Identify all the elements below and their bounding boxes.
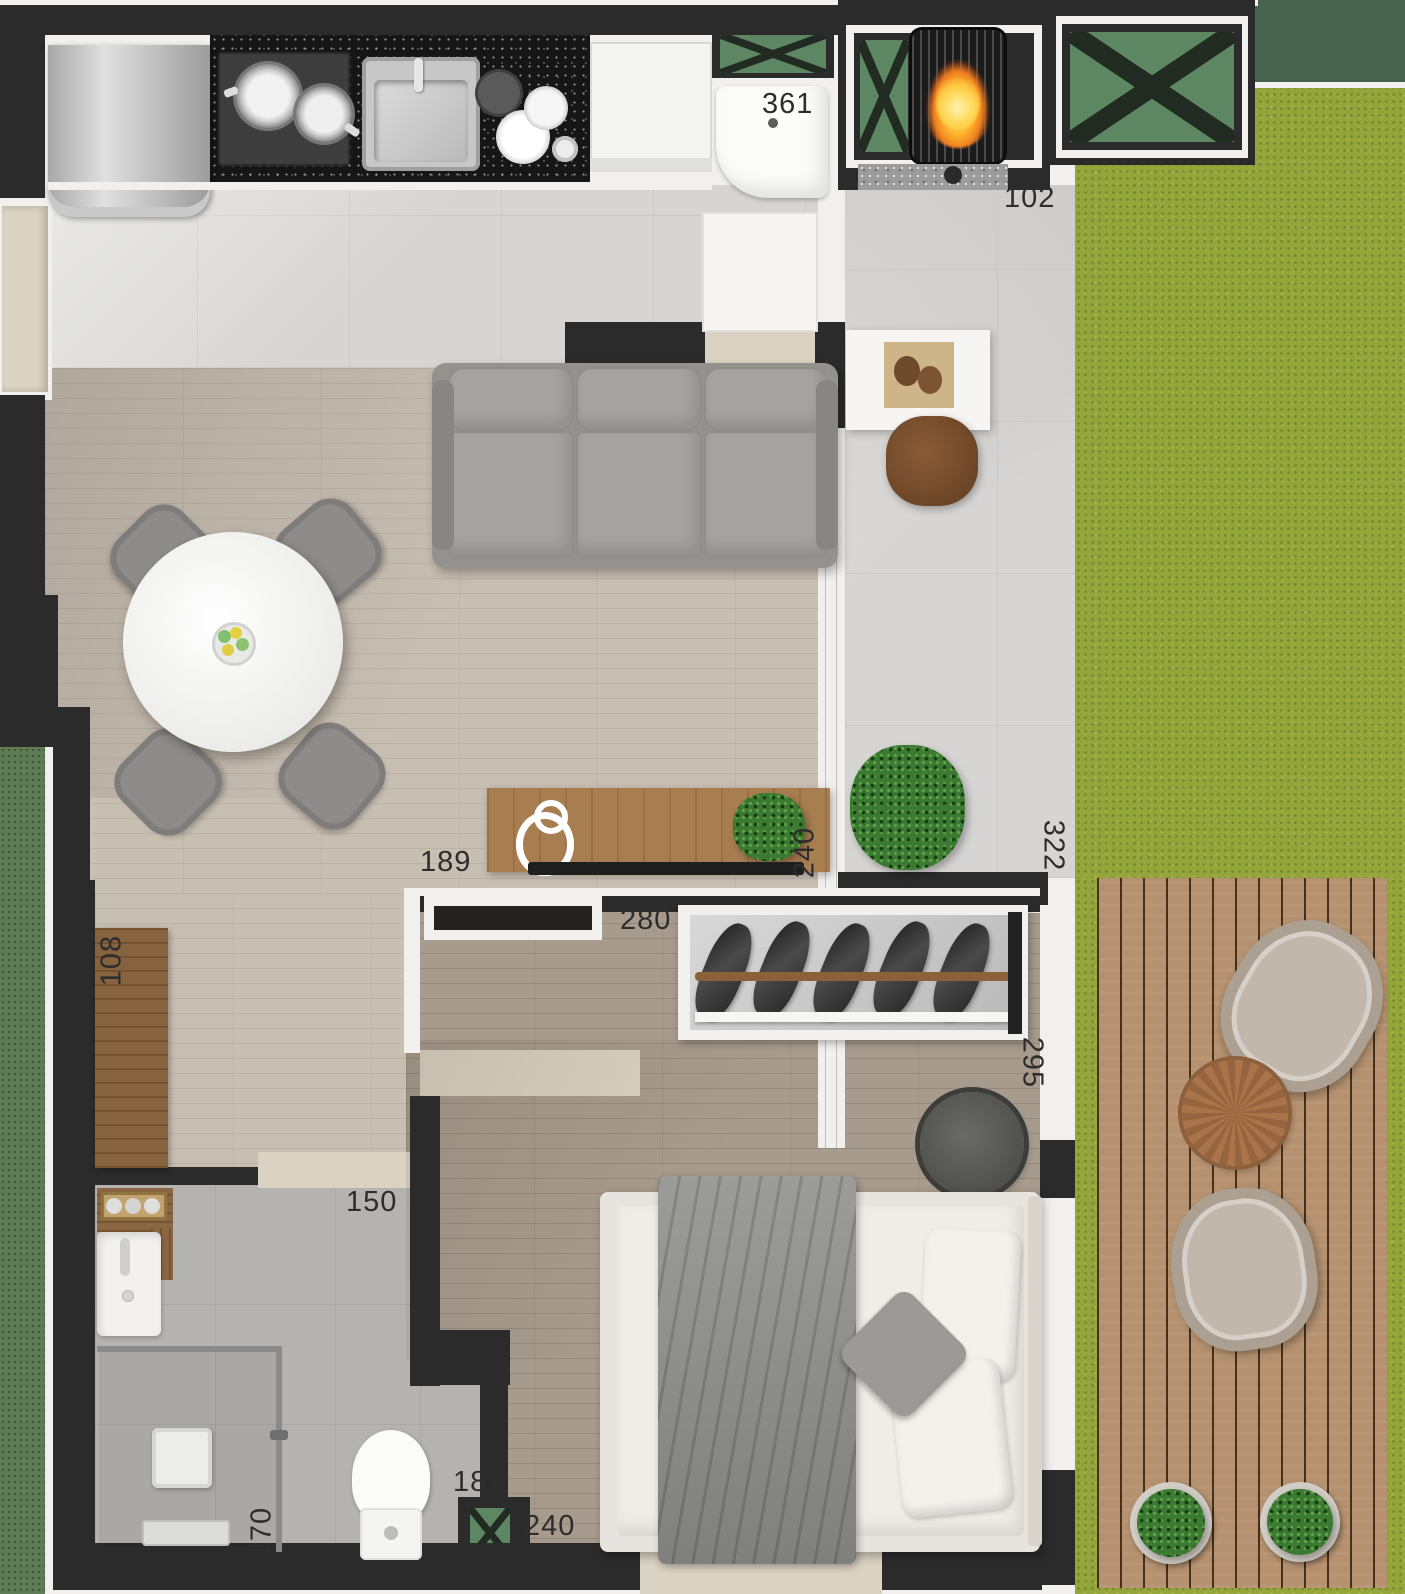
sofa-armrest [432, 380, 454, 550]
dimension-label-bathroom-wall: 187 [453, 1468, 504, 1497]
dimension-label-shower: 170 [248, 1503, 277, 1563]
hedge-top-right [1255, 0, 1405, 88]
dimension-label-bathroom-entry: 150 [346, 1188, 397, 1217]
wall-left-lower [53, 880, 95, 1543]
sofa-back-cushion [448, 367, 574, 431]
dimension-label-terrace-entry: 102 [1004, 184, 1055, 213]
duct-x-icon [720, 35, 826, 73]
toilet-flush-button [384, 1526, 398, 1540]
clothes-item [745, 915, 820, 1023]
clothes-item [687, 917, 762, 1025]
sofa-seat-cushion [576, 431, 702, 557]
counter-front-trim [48, 182, 712, 190]
lawn-edge-trim [1255, 82, 1405, 88]
bedside-table [920, 1092, 1024, 1196]
wall-bedroom-right-b [1040, 1470, 1075, 1585]
rolled-towel [106, 1198, 122, 1214]
sofa-back-cushion [576, 367, 702, 431]
planter-pot [1260, 1482, 1340, 1562]
sofa-back-cushion [704, 367, 828, 431]
kitchen-sink-basin [374, 80, 468, 162]
shower-head [152, 1428, 212, 1488]
bbq-grill [912, 30, 1004, 162]
tray-item [894, 356, 920, 386]
faucet-icon [120, 1238, 130, 1276]
rolled-towel [125, 1198, 141, 1214]
tv [528, 862, 804, 875]
terrace-tray [884, 342, 954, 408]
sofa-seat-cushion [448, 431, 574, 557]
fruit-bowl [212, 622, 256, 666]
shelf-niche-slot [434, 906, 592, 930]
dish-cup [552, 136, 578, 162]
pot [296, 86, 352, 142]
outdoor-table [1182, 1060, 1288, 1166]
blanket [658, 1176, 856, 1564]
sink-drain [122, 1290, 134, 1302]
dimension-label-bedroom-side: 295 [1018, 1033, 1047, 1093]
planter-trim [45, 747, 53, 1594]
dimension-label-bedroom-window: 240 [524, 1512, 575, 1541]
tray-item [918, 366, 942, 394]
clothes-item [925, 917, 1000, 1025]
rolled-towel [144, 1198, 160, 1214]
fridge [48, 45, 210, 217]
pot-plant [1137, 1489, 1205, 1557]
bathroom-threshold [258, 1152, 420, 1188]
entry-door [2, 206, 48, 392]
dish-pan [478, 72, 520, 114]
wall-hall-bath-stub [92, 1167, 258, 1185]
duct-x-icon [860, 40, 908, 152]
bbq-counter [858, 164, 1008, 190]
wall-bottom [53, 1543, 640, 1590]
faucet-icon [414, 58, 423, 92]
dishwasher [590, 42, 712, 172]
dimension-label-laundry: 361 [762, 90, 813, 119]
wall-bath-bedroom-upper [410, 1096, 440, 1386]
dimension-label-shelf: 280 [620, 906, 671, 935]
bedroom-threshold [420, 1050, 640, 1096]
sofa-seat-cushion [704, 431, 828, 557]
hall-bedroom-divider [404, 893, 420, 1053]
dimension-label-sideboard: 189 [420, 848, 471, 877]
shower-handle [270, 1430, 288, 1440]
dimension-label-living-terrace-wall: 240 [791, 823, 820, 883]
wardrobe-side-panel [1008, 912, 1022, 1034]
wall-bedroom-right-a [1040, 1140, 1075, 1198]
decor-vase-neck [534, 800, 568, 834]
bedroom-right-trim [1040, 905, 1075, 1545]
side-planter-strip [0, 747, 45, 1594]
fruit [236, 638, 249, 651]
sofa-armrest [816, 380, 838, 550]
dimension-label-entry-cabinet: 108 [98, 931, 127, 991]
wall-left-upper [0, 5, 45, 205]
fire-inner [936, 74, 980, 130]
wardrobe-rail [695, 972, 1011, 981]
floor-plan: 361 102 322 240 189 280 295 108 150 170 … [0, 0, 1405, 1594]
wardrobe-shelf [695, 1012, 1011, 1022]
wall-left-step1 [0, 595, 58, 707]
fruit [222, 644, 234, 656]
laundry-cabinet [702, 212, 818, 332]
wall-bath-corner-step [440, 1330, 510, 1385]
grass-lawn [1075, 84, 1405, 878]
wall-left-mid [0, 395, 45, 595]
bbq-knob [944, 166, 962, 184]
towel-tray [101, 1192, 167, 1220]
dimension-label-terrace-side: 322 [1039, 816, 1068, 876]
clothes-item [865, 915, 940, 1023]
wall-kitchen-terrace [565, 322, 705, 368]
shower-controls [142, 1520, 230, 1546]
planter-pot [1130, 1482, 1212, 1564]
shower-glass-rail [97, 1346, 282, 1352]
duct-x-icon [1070, 32, 1234, 142]
terrace-plant [850, 745, 965, 870]
pot [236, 64, 300, 128]
pot-plant [1267, 1489, 1333, 1555]
pouf [886, 416, 978, 506]
bed-headboard [1028, 1196, 1042, 1546]
clothes-item [805, 917, 880, 1025]
